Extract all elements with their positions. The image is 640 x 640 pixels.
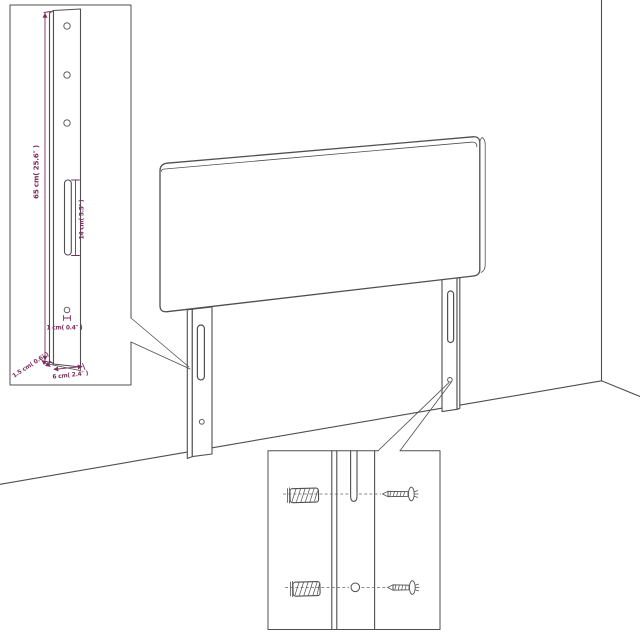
floor-line-left (0, 381, 602, 485)
panel-right-edge-face (481, 138, 486, 273)
wall-plug-icon (291, 581, 321, 596)
headboard (160, 137, 485, 459)
left-leg-side-face (187, 309, 192, 458)
leg-thickness-label: 1.5 cm( 0.6″ ) (12, 351, 51, 379)
dimension-leg-thickness: 1.5 cm( 0.6″ ) (12, 351, 51, 379)
slot-length-label: 14 cm( 5.5″ ) (80, 199, 86, 239)
right-leg-hole (448, 378, 453, 383)
inset-border (268, 451, 440, 630)
right-leg-side-face (457, 277, 460, 409)
magnified-leg-strip (332, 451, 375, 630)
left-leg-slot (197, 325, 204, 380)
leg-side-face (50, 11, 54, 365)
mounting-hole (64, 120, 70, 126)
mounting-hole (64, 23, 70, 29)
diagram-canvas: 65 cm( 25.6″ ) 14 cm( 5.5″ ) 1 cm( 0.4″ … (0, 0, 640, 640)
hole-diameter-label: 1 cm( 0.4″ ) (47, 326, 83, 332)
screw-icon (383, 487, 419, 501)
callout-line (400, 382, 451, 451)
alignment-dashes (283, 494, 386, 588)
panel-front-face (160, 137, 480, 312)
keyhole-slot (65, 180, 72, 255)
headboard-panel (160, 137, 485, 312)
callout-line (131, 342, 190, 369)
left-leg-hole (199, 419, 204, 424)
leg-hole (351, 583, 360, 592)
callout-line (131, 318, 189, 367)
leg-height-label: 65 cm( 25.6″ ) (32, 145, 41, 199)
mounting-hole (64, 72, 70, 78)
right-leg-slot (448, 291, 454, 343)
callout-line (378, 383, 449, 451)
floor-line-right (602, 381, 640, 397)
mounting-hardware-inset (268, 382, 451, 629)
leg-width-label: 6 cm( 2.4″ ) (52, 371, 89, 381)
assembly-diagram: 65 cm( 25.6″ ) 14 cm( 5.5″ ) 1 cm( 0.4″ … (0, 0, 640, 640)
left-mounting-leg (187, 307, 212, 459)
screw-icon (388, 581, 420, 595)
dimension-leg-height: 65 cm( 25.6″ ) (32, 12, 51, 363)
leg-slot-open-top (351, 451, 357, 502)
wall-plug-icon (288, 488, 319, 503)
screw-hole (64, 307, 70, 313)
